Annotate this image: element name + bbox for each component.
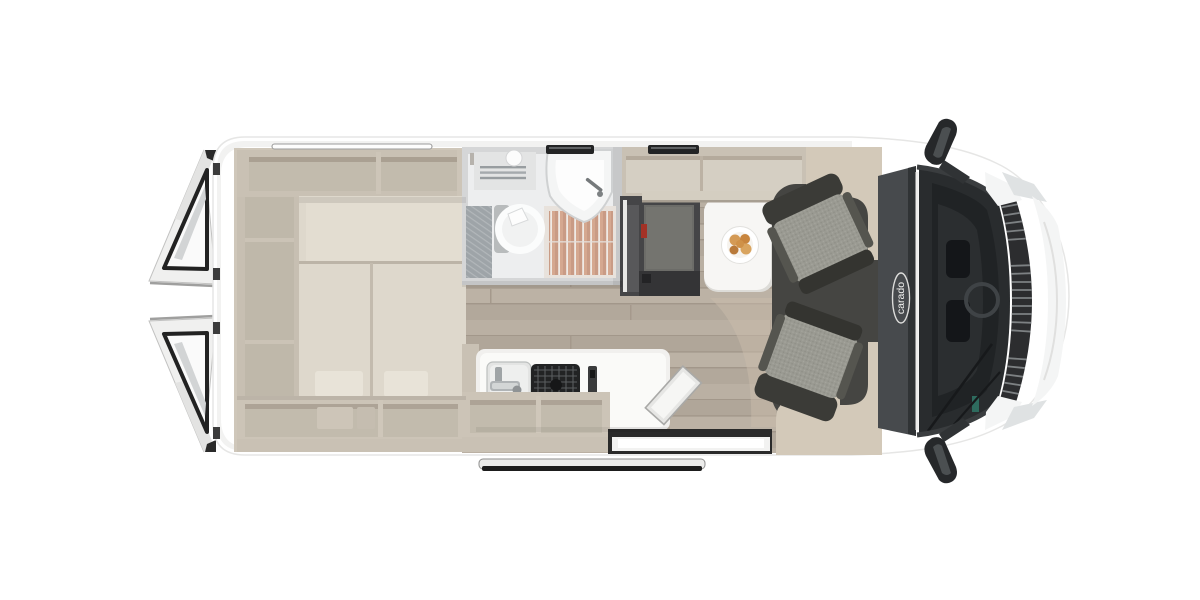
svg-text:carado: carado xyxy=(895,282,907,314)
